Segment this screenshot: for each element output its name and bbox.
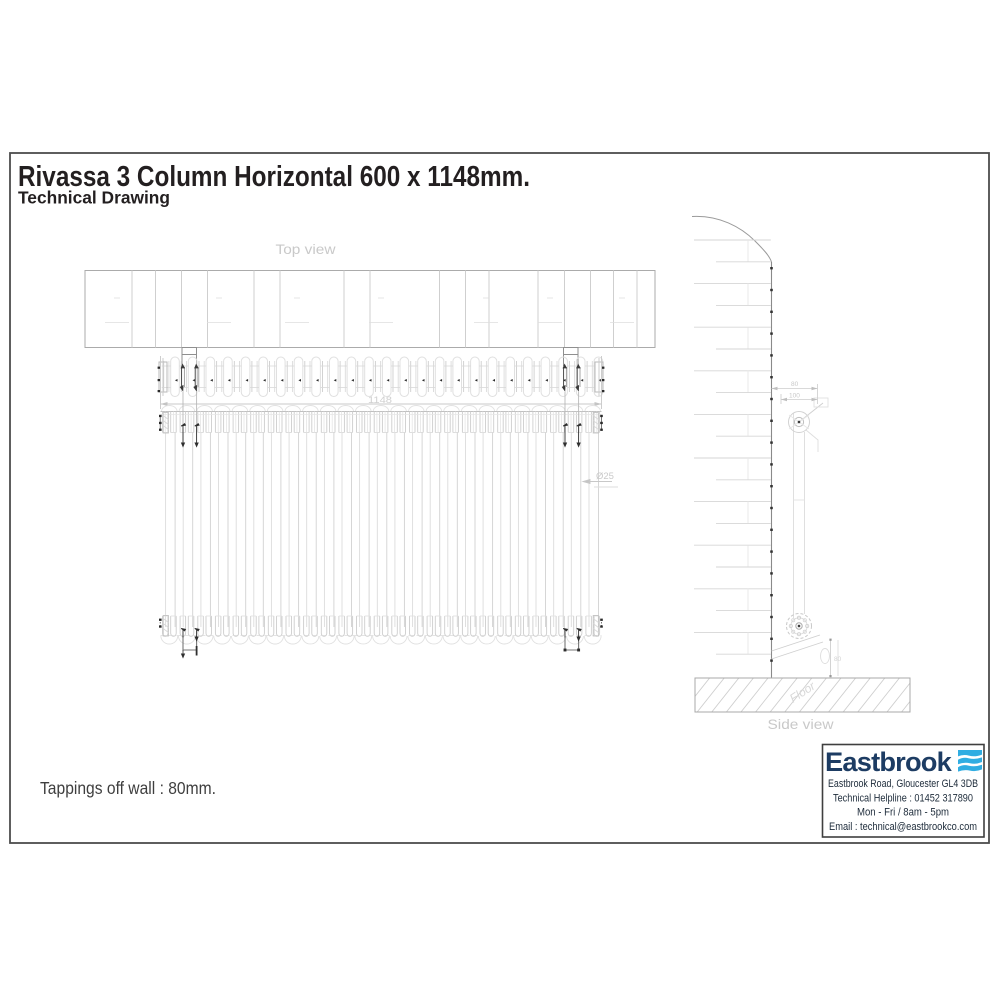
svg-text:Email : technical@eastbrookco.: Email : technical@eastbrookco.com [829,821,977,833]
svg-text:Tappings off wall : 80mm.: Tappings off wall : 80mm. [40,778,216,798]
svg-text:Ø25: Ø25 [596,471,614,482]
svg-text:1148: 1148 [368,395,392,406]
svg-text:Side view: Side view [768,717,834,732]
svg-text:Eastbrook: Eastbrook [825,747,953,777]
svg-text:100: 100 [789,393,800,400]
svg-text:Mon - Fri / 8am - 5pm: Mon - Fri / 8am - 5pm [857,807,949,819]
svg-text:80: 80 [791,381,799,388]
svg-text:Technical Drawing: Technical Drawing [18,188,170,208]
svg-text:Top view: Top view [276,242,336,257]
svg-text:80: 80 [834,656,842,663]
svg-text:Eastbrook Road, Gloucester GL4: Eastbrook Road, Gloucester GL4 3DB [828,778,978,790]
svg-text:Technical Helpline : 01452 317: Technical Helpline : 01452 317890 [833,793,973,805]
svg-text:Floor: Floor [787,678,818,705]
